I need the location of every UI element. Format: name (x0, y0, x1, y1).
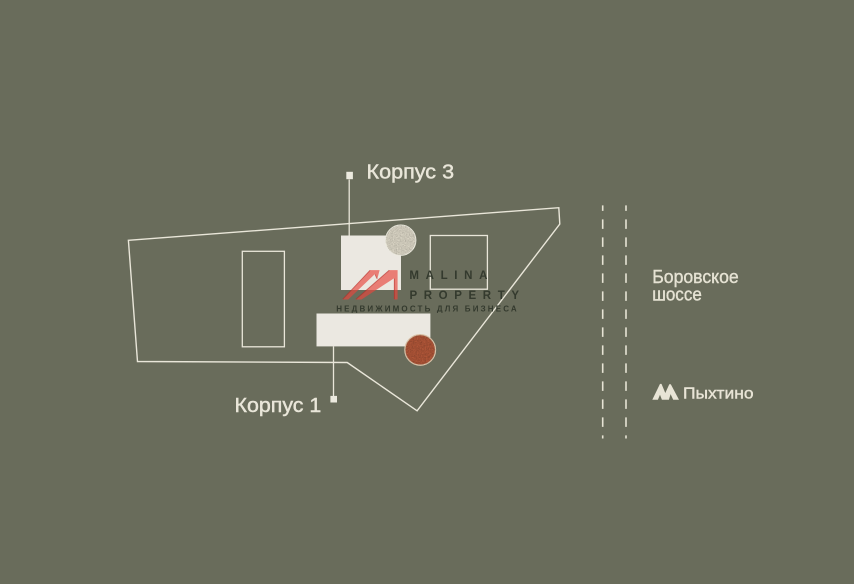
svg-text:Корпус 1: Корпус 1 (235, 394, 322, 417)
svg-text:шоссе: шоссе (652, 284, 702, 305)
svg-text:НЕДВИЖИМОСТЬ ДЛЯ БИЗНЕСА: НЕДВИЖИМОСТЬ ДЛЯ БИЗНЕСА (336, 305, 517, 314)
svg-text:Пыхтино: Пыхтино (683, 386, 754, 403)
svg-text:Корпус 3: Корпус 3 (367, 160, 455, 183)
